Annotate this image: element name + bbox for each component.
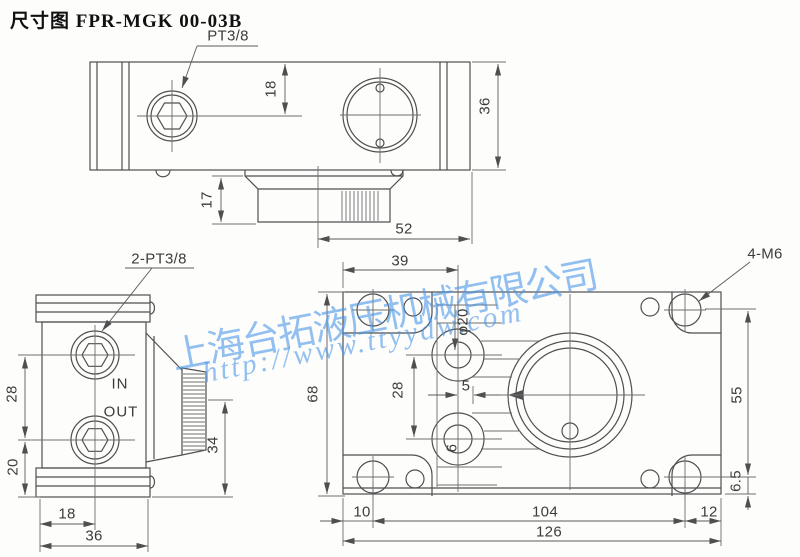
dim-10-front: 10: [353, 504, 370, 521]
dim-12-front: 12: [700, 504, 717, 521]
dim-34-side: 34: [205, 436, 222, 453]
dim-17-top: 17: [199, 191, 216, 208]
dim-5-front: 5: [462, 378, 471, 395]
top-cap: [36, 295, 150, 322]
dim-phi20-front: φ20: [455, 308, 472, 335]
dim-68-front: 68: [305, 385, 322, 402]
dim-55-front: 55: [729, 386, 746, 403]
in-label: IN: [112, 376, 129, 393]
bottom-cap: [36, 468, 150, 497]
port-label-pt38: PT3/8: [207, 28, 249, 45]
top-view: [90, 46, 506, 248]
knob-protrusion: [245, 170, 403, 222]
knurl-lines-side: [183, 374, 205, 450]
dim-20-side: 20: [5, 458, 22, 475]
dim-18-side: 18: [58, 506, 75, 523]
holes-label-4m6: 4-M6: [747, 246, 782, 263]
dim-28-front: 28: [390, 381, 407, 398]
technical-drawing-page: 上海台拓液压机械有限公司 http://www.ttyydw.com 尺寸图 F…: [0, 0, 800, 557]
knurl-lines-top: [342, 191, 378, 221]
dim-28-side: 28: [4, 385, 21, 402]
knob-side: [146, 333, 206, 462]
dim-126-front: 126: [536, 524, 562, 541]
dim-39-front: 39: [391, 253, 408, 270]
drawing-canvas: [0, 0, 800, 557]
dim-6-front: 6: [444, 444, 461, 453]
dim-36-side: 36: [85, 528, 102, 545]
ports-label-2pt38: 2-PT3/8: [131, 251, 186, 268]
dim-18-top: 18: [263, 80, 280, 97]
dim-104-front: 104: [532, 504, 558, 521]
dim-36-top: 36: [477, 97, 494, 114]
out-label: OUT: [104, 404, 139, 421]
dim-6-5-front: 6.5: [728, 470, 745, 492]
dim-52-top: 52: [395, 221, 412, 238]
